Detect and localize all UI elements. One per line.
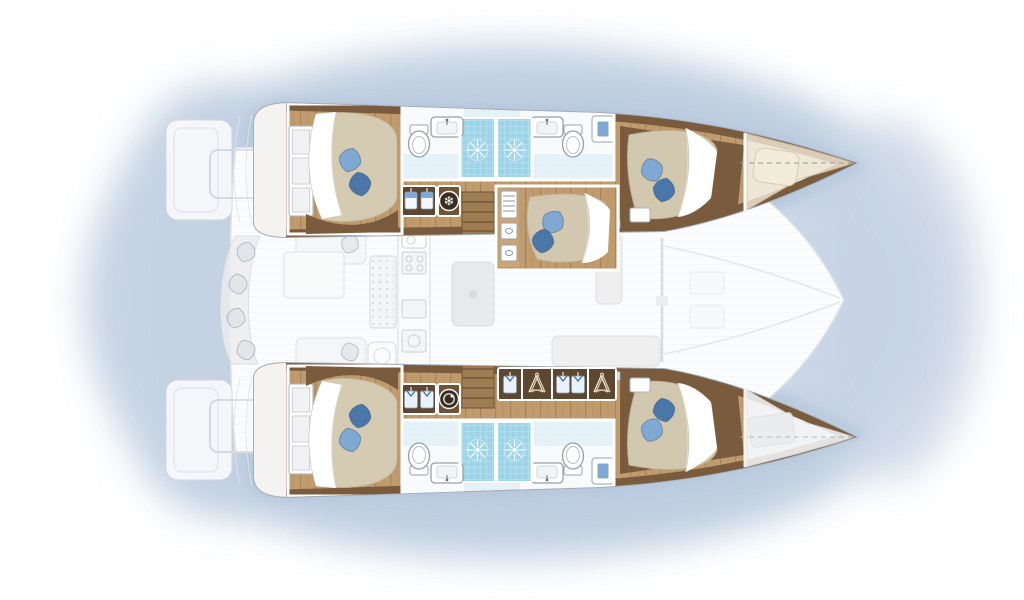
central-cabin	[496, 186, 618, 270]
saloon-table	[452, 262, 494, 326]
galley-island	[370, 256, 396, 328]
cabin-drawer	[501, 223, 517, 239]
central-cabin-bed	[527, 193, 610, 263]
galley-stove-icon	[402, 252, 426, 274]
wardrobe-row	[498, 368, 616, 400]
washing-machine-icon	[440, 390, 459, 409]
saloon-sofa-bottom	[552, 336, 660, 366]
cabin-shelf-ladder	[501, 191, 517, 218]
floorplan-illustration: ❄	[0, 0, 1024, 600]
galley-oven-icon	[402, 300, 426, 318]
galley-burner-icon	[402, 330, 426, 352]
cabin-drawer	[501, 245, 517, 261]
snowflake-icon: ❄	[444, 195, 455, 210]
port-hull-lockers: ❄	[402, 186, 460, 216]
saloon-cabinet	[284, 252, 344, 298]
galley	[398, 228, 430, 366]
catamaran-floorplan-page: ❄	[0, 0, 1024, 600]
fridge-snowflake-icon: ❄	[440, 192, 459, 211]
